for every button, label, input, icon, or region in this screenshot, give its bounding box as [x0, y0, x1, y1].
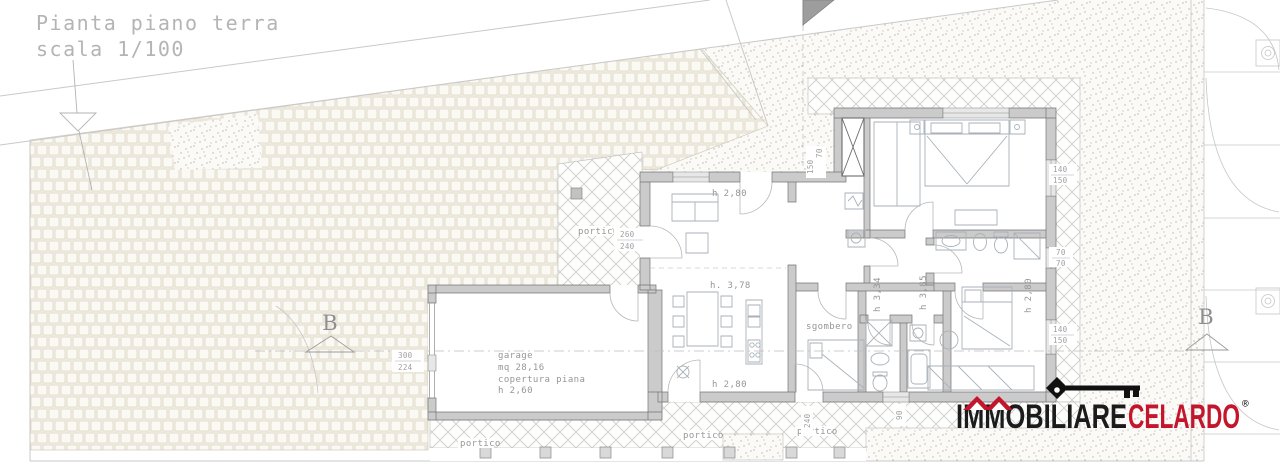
- label-garage-area: mq 28,16: [498, 363, 545, 373]
- dim-window-top-h: 150: [1053, 176, 1068, 185]
- dim-window-bottom-wall: 90: [895, 410, 904, 420]
- plan-title-line2: scala 1/100: [36, 37, 185, 61]
- dim-window-bottom-h: 150: [1053, 336, 1068, 345]
- dim-portico-w: 260: [620, 230, 635, 239]
- section-label-left: B: [322, 311, 337, 335]
- label-sgombero: sgombero: [806, 322, 853, 332]
- plan-title-line1: Pianta piano terra: [36, 11, 280, 35]
- label-height-living: h 2,80: [712, 189, 747, 199]
- section-label-right: B: [1198, 305, 1213, 329]
- label-garage: garage: [498, 351, 533, 361]
- floor-plan-drawing: Pianta piano terra scala 1/100 B B garag…: [0, 0, 1280, 465]
- neighbor-plots: [1191, 0, 1280, 465]
- label-garage-note: copertura piana: [498, 375, 585, 385]
- dim-entry-w: 70: [815, 148, 824, 158]
- logo-word-celardo: CELARDO: [1128, 398, 1240, 436]
- label-portico-bottom-left: portico: [460, 439, 501, 449]
- label-height-bedroom: h 2,80: [1024, 278, 1034, 313]
- label-portico-left: portico: [578, 227, 619, 237]
- dim-garage-h: 224: [398, 363, 413, 372]
- floor-plan-page: Pianta piano terra scala 1/100 B B garag…: [0, 0, 1280, 465]
- dim-window-bottom-w: 140: [1053, 325, 1068, 334]
- column: [571, 188, 582, 199]
- dim-entry-h: 150: [806, 159, 815, 174]
- portico-edge-band: [430, 448, 866, 461]
- dim-window-mid-h: 70: [1056, 259, 1066, 268]
- logo-registered-mark: ®: [1242, 397, 1249, 410]
- label-height-bath: h 3,34: [873, 277, 883, 312]
- dim-window-mid-w: 70: [1056, 248, 1066, 257]
- section-cut-marker: [803, 0, 834, 25]
- dim-portico-h: 240: [620, 242, 635, 251]
- garage-floor: [428, 285, 662, 420]
- dim-window-top-w: 140: [1053, 165, 1068, 174]
- label-height-hall: h 3,85: [919, 275, 929, 310]
- dim-garage-w: 300: [398, 351, 413, 360]
- label-height-kitchen: h 2,80: [712, 380, 747, 390]
- dim-door-bottom: 240: [803, 413, 812, 428]
- label-portico-bottom-mid: portico: [683, 431, 724, 441]
- label-height-dining: h. 3,78: [710, 281, 751, 291]
- label-garage-height: h 2,60: [498, 386, 533, 396]
- portico-left: [558, 152, 642, 290]
